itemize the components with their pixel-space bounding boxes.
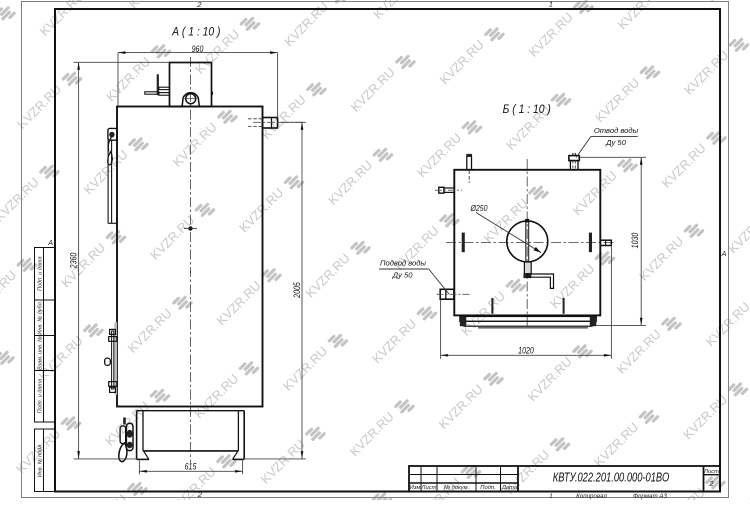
svg-text:615: 615 bbox=[185, 462, 197, 472]
svg-text:Копировал: Копировал bbox=[576, 493, 607, 500]
svg-text:Б ( 1 : 10 ): Б ( 1 : 10 ) bbox=[503, 104, 551, 117]
svg-text:2: 2 bbox=[708, 479, 714, 488]
svg-text:2360: 2360 bbox=[69, 252, 79, 269]
svg-text:Формат А3: Формат А3 bbox=[633, 493, 667, 500]
svg-text:2: 2 bbox=[197, 490, 203, 499]
svg-text:Лист: Лист bbox=[421, 485, 437, 491]
svg-text:960: 960 bbox=[192, 44, 204, 54]
svg-text:Подвод воды: Подвод воды bbox=[380, 259, 426, 268]
svg-text:А ( 1 : 10 ): А ( 1 : 10 ) bbox=[171, 26, 220, 39]
svg-text:Ду 50: Ду 50 bbox=[392, 271, 414, 280]
svg-text:Взам. инв. №: Взам. инв. № bbox=[38, 336, 44, 370]
svg-text:1030: 1030 bbox=[630, 232, 640, 248]
svg-text:Инв. № дубл.: Инв. № дубл. bbox=[38, 301, 44, 335]
svg-text:Инв. № подл.: Инв. № подл. bbox=[38, 443, 44, 477]
svg-text:А: А bbox=[47, 238, 53, 247]
svg-text:Ø250: Ø250 bbox=[470, 203, 489, 213]
svg-text:1020: 1020 bbox=[518, 346, 534, 356]
svg-text:1: 1 bbox=[549, 0, 553, 9]
svg-text:Дата: Дата bbox=[501, 485, 518, 491]
svg-text:Ду 50: Ду 50 bbox=[605, 138, 627, 147]
svg-text:Лист: Лист bbox=[703, 469, 719, 475]
svg-text:Отвод воды: Отвод воды bbox=[594, 126, 639, 135]
svg-text:Подп.: Подп. bbox=[480, 485, 495, 491]
svg-text:№ докум.: № докум. bbox=[444, 485, 470, 491]
svg-text:1: 1 bbox=[549, 493, 552, 500]
svg-text:Подп. и дата: Подп. и дата bbox=[38, 379, 44, 413]
svg-text:2005: 2005 bbox=[292, 282, 302, 299]
svg-text:2: 2 bbox=[196, 0, 202, 9]
svg-text:Подп. и дата: Подп. и дата bbox=[38, 256, 44, 290]
svg-text:КВТУ.022.201.00.000-01ВО: КВТУ.022.201.00.000-01ВО bbox=[553, 471, 670, 485]
svg-text:Изм: Изм bbox=[410, 485, 421, 491]
svg-text:А: А bbox=[721, 249, 727, 258]
